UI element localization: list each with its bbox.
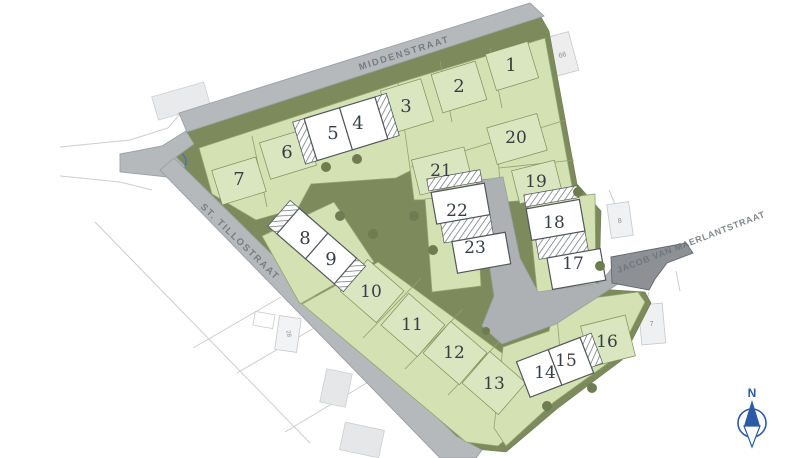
tree-icon <box>595 261 605 271</box>
site-plan: MIDDENSTRAAT ST. TILLOSTRAAT JACOB VAN M… <box>0 0 800 458</box>
context-shed <box>253 311 275 328</box>
tree-icon <box>542 401 552 411</box>
lot-2-label: 2 <box>453 76 464 97</box>
lot-20-label: 20 <box>505 128 527 148</box>
tree-icon <box>409 211 419 221</box>
lot-19-label: 19 <box>525 172 547 192</box>
tree-icon <box>428 245 438 255</box>
tree-icon <box>352 154 362 164</box>
lot-5-label: 5 <box>327 123 338 144</box>
tree-icon <box>335 211 345 221</box>
tree-icon <box>482 327 490 335</box>
lot-21-label: 21 <box>430 161 452 181</box>
lot-23-label: 23 <box>464 238 486 258</box>
tree-icon <box>368 229 378 239</box>
lot-16-label: 16 <box>596 332 618 352</box>
lot-9-label: 9 <box>325 249 336 270</box>
tree-icon <box>321 162 331 172</box>
context-building-7-label: 7 <box>650 321 655 328</box>
lot-17-label: 17 <box>562 254 584 274</box>
lot-8-label: 8 <box>299 228 310 249</box>
lot-12-label: 12 <box>443 343 465 363</box>
site-plan-svg: MIDDENSTRAAT ST. TILLOSTRAAT JACOB VAN M… <box>0 0 800 458</box>
lot-14-label: 14 <box>534 363 556 383</box>
lot-11-label: 11 <box>401 315 423 335</box>
lot-13-label: 13 <box>483 374 505 394</box>
tree-icon <box>573 187 583 197</box>
lot-7-label: 7 <box>233 169 244 190</box>
lot-22-label: 22 <box>446 201 468 221</box>
lot-6-label: 6 <box>281 142 292 163</box>
lot-3-label: 3 <box>400 96 411 117</box>
lot-4-label: 4 <box>352 113 363 134</box>
compass-north-label: N <box>748 386 757 400</box>
tree-icon <box>587 383 597 393</box>
lot-10-label: 10 <box>360 282 382 302</box>
lot-15-label: 15 <box>555 351 577 371</box>
lot-1-label: 1 <box>505 55 516 76</box>
lot-18-label: 18 <box>543 213 565 233</box>
